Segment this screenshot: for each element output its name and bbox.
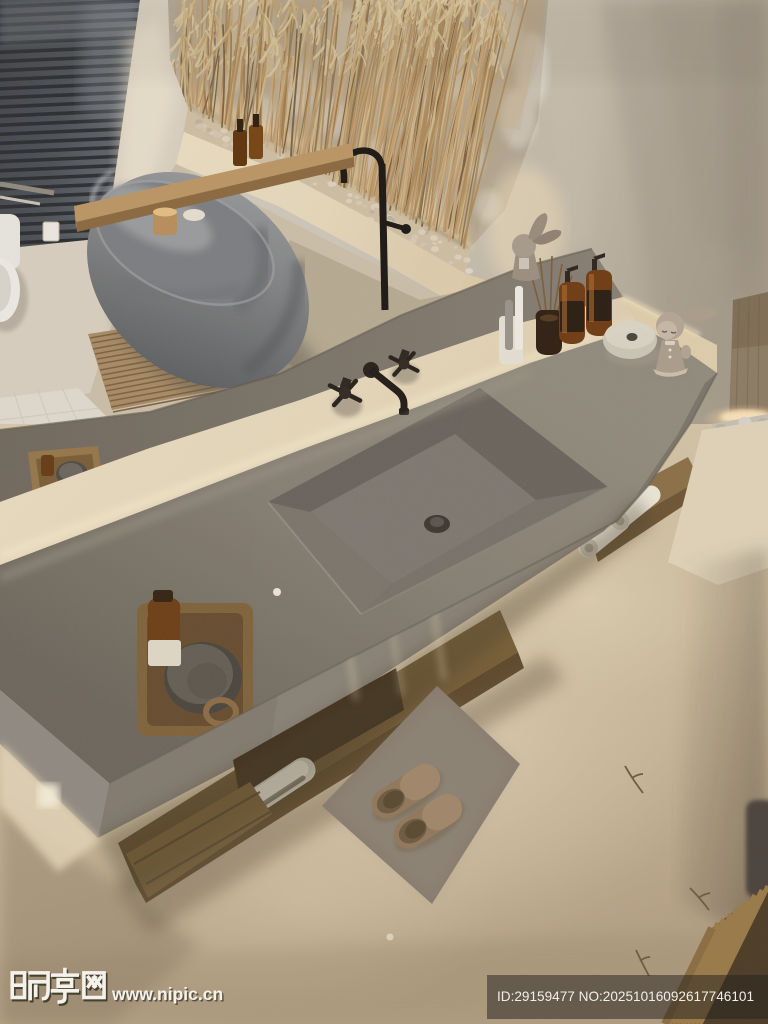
svg-text:ID:29159477 NO:202510160926177: ID:29159477 NO:20251016092617746101 xyxy=(497,989,754,1004)
svg-text:www.nipic.cn: www.nipic.cn xyxy=(111,984,223,1004)
